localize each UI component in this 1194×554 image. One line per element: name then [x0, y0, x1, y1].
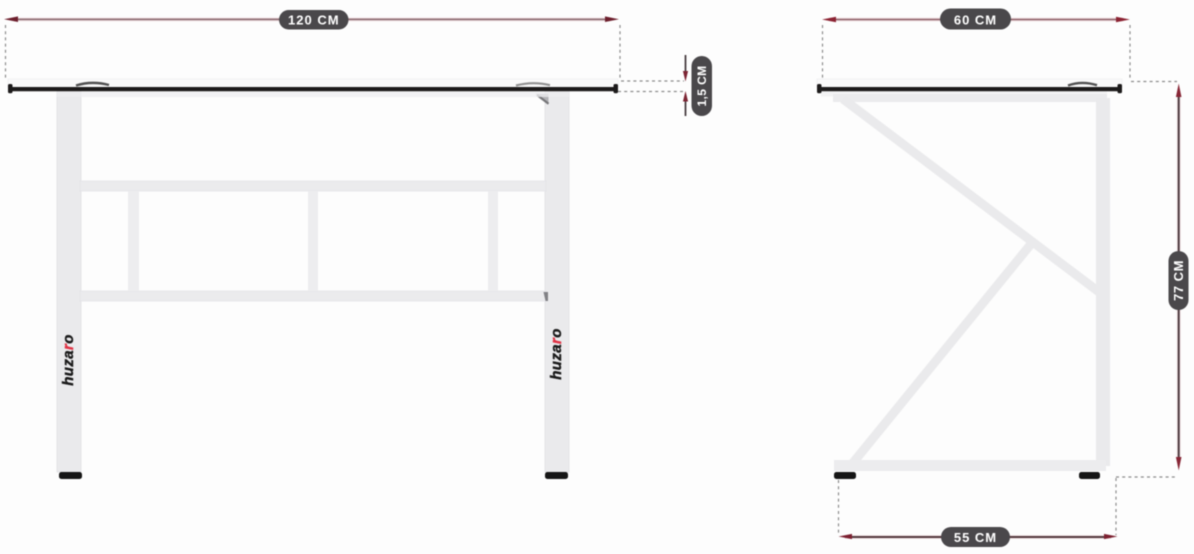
svg-text:55 CM: 55 CM	[954, 530, 997, 545]
svg-text:1,5 CM: 1,5 CM	[695, 65, 709, 106]
svg-text:120 CM: 120 CM	[288, 12, 340, 27]
svg-text:huzaro: huzaro	[60, 334, 77, 386]
svg-text:huzaro: huzaro	[548, 328, 565, 380]
svg-text:60 CM: 60 CM	[954, 12, 997, 27]
svg-text:77 CM: 77 CM	[1171, 260, 1186, 301]
